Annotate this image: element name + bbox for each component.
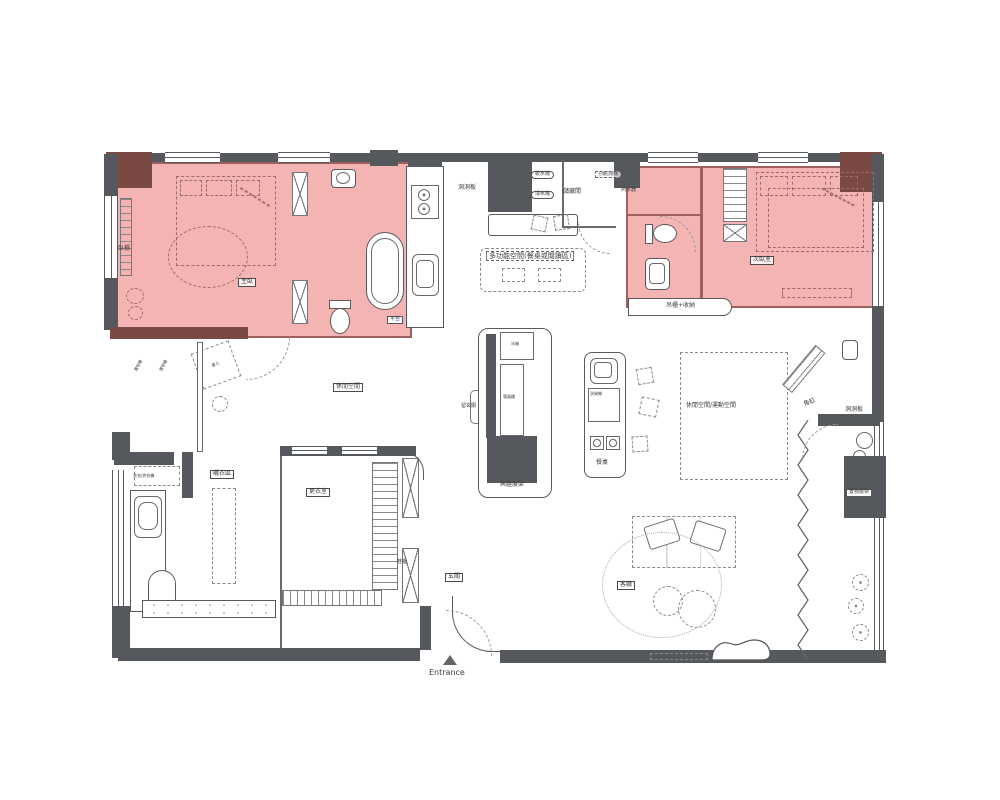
top-window-1 — [165, 152, 220, 163]
label-drying-area: 曬衣區 — [210, 470, 234, 479]
kitchen-appliance-top — [408, 154, 442, 166]
label-water-purifier: 淨水機 — [531, 191, 554, 199]
island-burner-1 — [590, 436, 604, 450]
leisure-exercise-zone — [680, 352, 788, 480]
dressing-closet-lower — [402, 548, 419, 603]
label-corner-tank: 角缸 — [803, 398, 817, 409]
master-sink-basin — [336, 172, 350, 184]
label-water-softener: 軟水機 — [531, 171, 554, 179]
stove-burner-1 — [418, 189, 430, 201]
label-hanging-cabinet-storage: 吊櫃+收納 — [666, 303, 695, 310]
label-platform: 平台 — [387, 316, 403, 324]
label-master-bedroom: 主臥 — [238, 278, 256, 287]
label-reserved-entry: 留玄關 — [461, 404, 476, 410]
balcony-plant-3 — [852, 624, 869, 641]
window-seat-bench — [120, 198, 132, 276]
bathtub-inner — [371, 238, 399, 304]
label-dining-table: 餐桌 — [596, 460, 608, 467]
laundry-bottom-cabinet — [142, 600, 276, 618]
balcony-storage-box — [844, 456, 886, 518]
label-storage-room: 儲藏間 — [563, 189, 581, 196]
label-shelf-rack: 置物層架 — [846, 489, 872, 497]
balcony-clock-large — [856, 432, 873, 449]
master-toilet-bowl — [330, 308, 350, 334]
label-second-bedroom: 次臥室 — [750, 256, 774, 265]
dressing-hanger-rail — [282, 590, 382, 606]
second-toilet-tank — [645, 224, 653, 244]
kitchen-sink-basin — [416, 260, 434, 288]
left-wall-upper — [104, 154, 118, 196]
side-stool — [212, 396, 228, 412]
balcony-chair — [842, 340, 858, 360]
label-leisure-exercise: 休閒空間/運動空間 — [686, 403, 736, 410]
multifunction-table-2 — [538, 268, 561, 282]
second-closet-shelves — [723, 168, 747, 222]
stove-burner-2 — [418, 203, 430, 215]
label-appliance-cabinet: 電器櫃 — [503, 395, 515, 400]
label-living-room: 客廳 — [617, 581, 635, 590]
dining-chair-1 — [636, 367, 655, 386]
laundry-wall-strip — [182, 452, 193, 498]
label-pegboard-kitchen: 洞洞板 — [458, 185, 476, 192]
central-unit-tall-box — [500, 364, 524, 436]
second-bench — [782, 288, 852, 298]
left-window-master — [104, 196, 118, 278]
label-hobby-shelf: 興趣展架 — [500, 482, 524, 489]
multifunction-table-1 — [502, 268, 525, 282]
master-wardrobe-upper — [292, 172, 308, 216]
second-closet-xbox — [723, 224, 747, 242]
balcony-plant-1 — [852, 574, 869, 591]
left-window-laundry — [112, 470, 124, 608]
label-entry-hall: 玄關 — [445, 573, 463, 582]
dressing-top-window-2 — [342, 446, 377, 455]
master-plant-1 — [126, 288, 144, 304]
master-pillow-1 — [180, 180, 202, 196]
master-pillow-2 — [206, 180, 232, 196]
top-window-2 — [278, 152, 330, 163]
second-sink-basin — [649, 263, 665, 284]
top-window-4 — [758, 152, 808, 163]
island-burner-2 — [606, 436, 620, 450]
right-wall-mid — [872, 306, 884, 424]
left-wall-mid — [104, 278, 118, 330]
top-vent-block — [370, 150, 398, 166]
laundry-sink-basin — [138, 502, 158, 530]
master-door-arc — [246, 336, 290, 380]
label-storage-cabinet-1: 置物櫃 — [134, 359, 144, 372]
entrance-arrow-icon — [443, 655, 457, 665]
label-water-heater: 熱水器 — [621, 188, 636, 194]
label-recycle-bins: 分類回收桶 — [595, 171, 621, 178]
floor-plan: 臥榻主臥置物櫃置物櫃平台洞洞板軟水機淨水機儲藏間分類回收桶熱水器多功能空間(餐桌… — [0, 0, 1000, 800]
bottom-wall-left — [118, 648, 420, 661]
pegboard-block — [488, 156, 532, 212]
label-storage-cabinet-2: 置物櫃 — [159, 359, 169, 372]
label-window-seat: 臥榻 — [118, 246, 130, 253]
label-entrance: Entrance — [429, 668, 465, 677]
central-unit-dark-strip — [486, 334, 496, 438]
label-washer-dryer: 洗衣/烘衣機 — [133, 474, 154, 479]
pet-bed — [710, 636, 772, 662]
dressing-top-window-1 — [292, 446, 327, 455]
master-rug — [168, 226, 248, 288]
label-leisure-space: 休閒空間 — [333, 383, 363, 392]
dining-chair-2 — [638, 396, 659, 417]
label-dressing-room: 更衣室 — [306, 488, 330, 497]
entry-wall-strip — [420, 606, 431, 650]
doormat — [650, 653, 708, 660]
master-wardrobe-lower — [292, 280, 308, 324]
top-window-3 — [648, 152, 698, 163]
drying-rack — [212, 488, 236, 584]
island-sink-basin — [594, 362, 612, 378]
balcony-plant-2 — [848, 598, 864, 614]
corner-tank-shelf — [782, 345, 825, 393]
dressing-hanger-column — [372, 462, 398, 590]
label-multifunction-space: 多功能空間(餐桌或閱讀區) — [486, 251, 574, 261]
counter-stool-1 — [531, 215, 549, 233]
hall-wall-stub — [197, 342, 203, 452]
central-unit-dark-box — [487, 436, 537, 483]
master-bottom-wall — [110, 327, 248, 339]
dining-chair-3 — [631, 435, 648, 452]
label-pegboard-balcony: 洞洞板 — [845, 407, 863, 414]
dressing-left-wall — [280, 456, 282, 648]
label-fridge: 冰箱 — [511, 342, 519, 347]
master-plant-2 — [128, 306, 143, 320]
second-bath-partition — [700, 168, 703, 306]
label-dishwasher: 洗碗機 — [590, 392, 602, 397]
label-shoe-cabinet: 鞋櫃 — [397, 560, 407, 566]
balcony-shelf-bar — [818, 414, 880, 426]
pouf-large — [678, 590, 716, 628]
laundry-top-wall — [114, 452, 174, 465]
dressing-rounded-corner — [398, 452, 424, 480]
second-bed-inner — [768, 188, 864, 248]
